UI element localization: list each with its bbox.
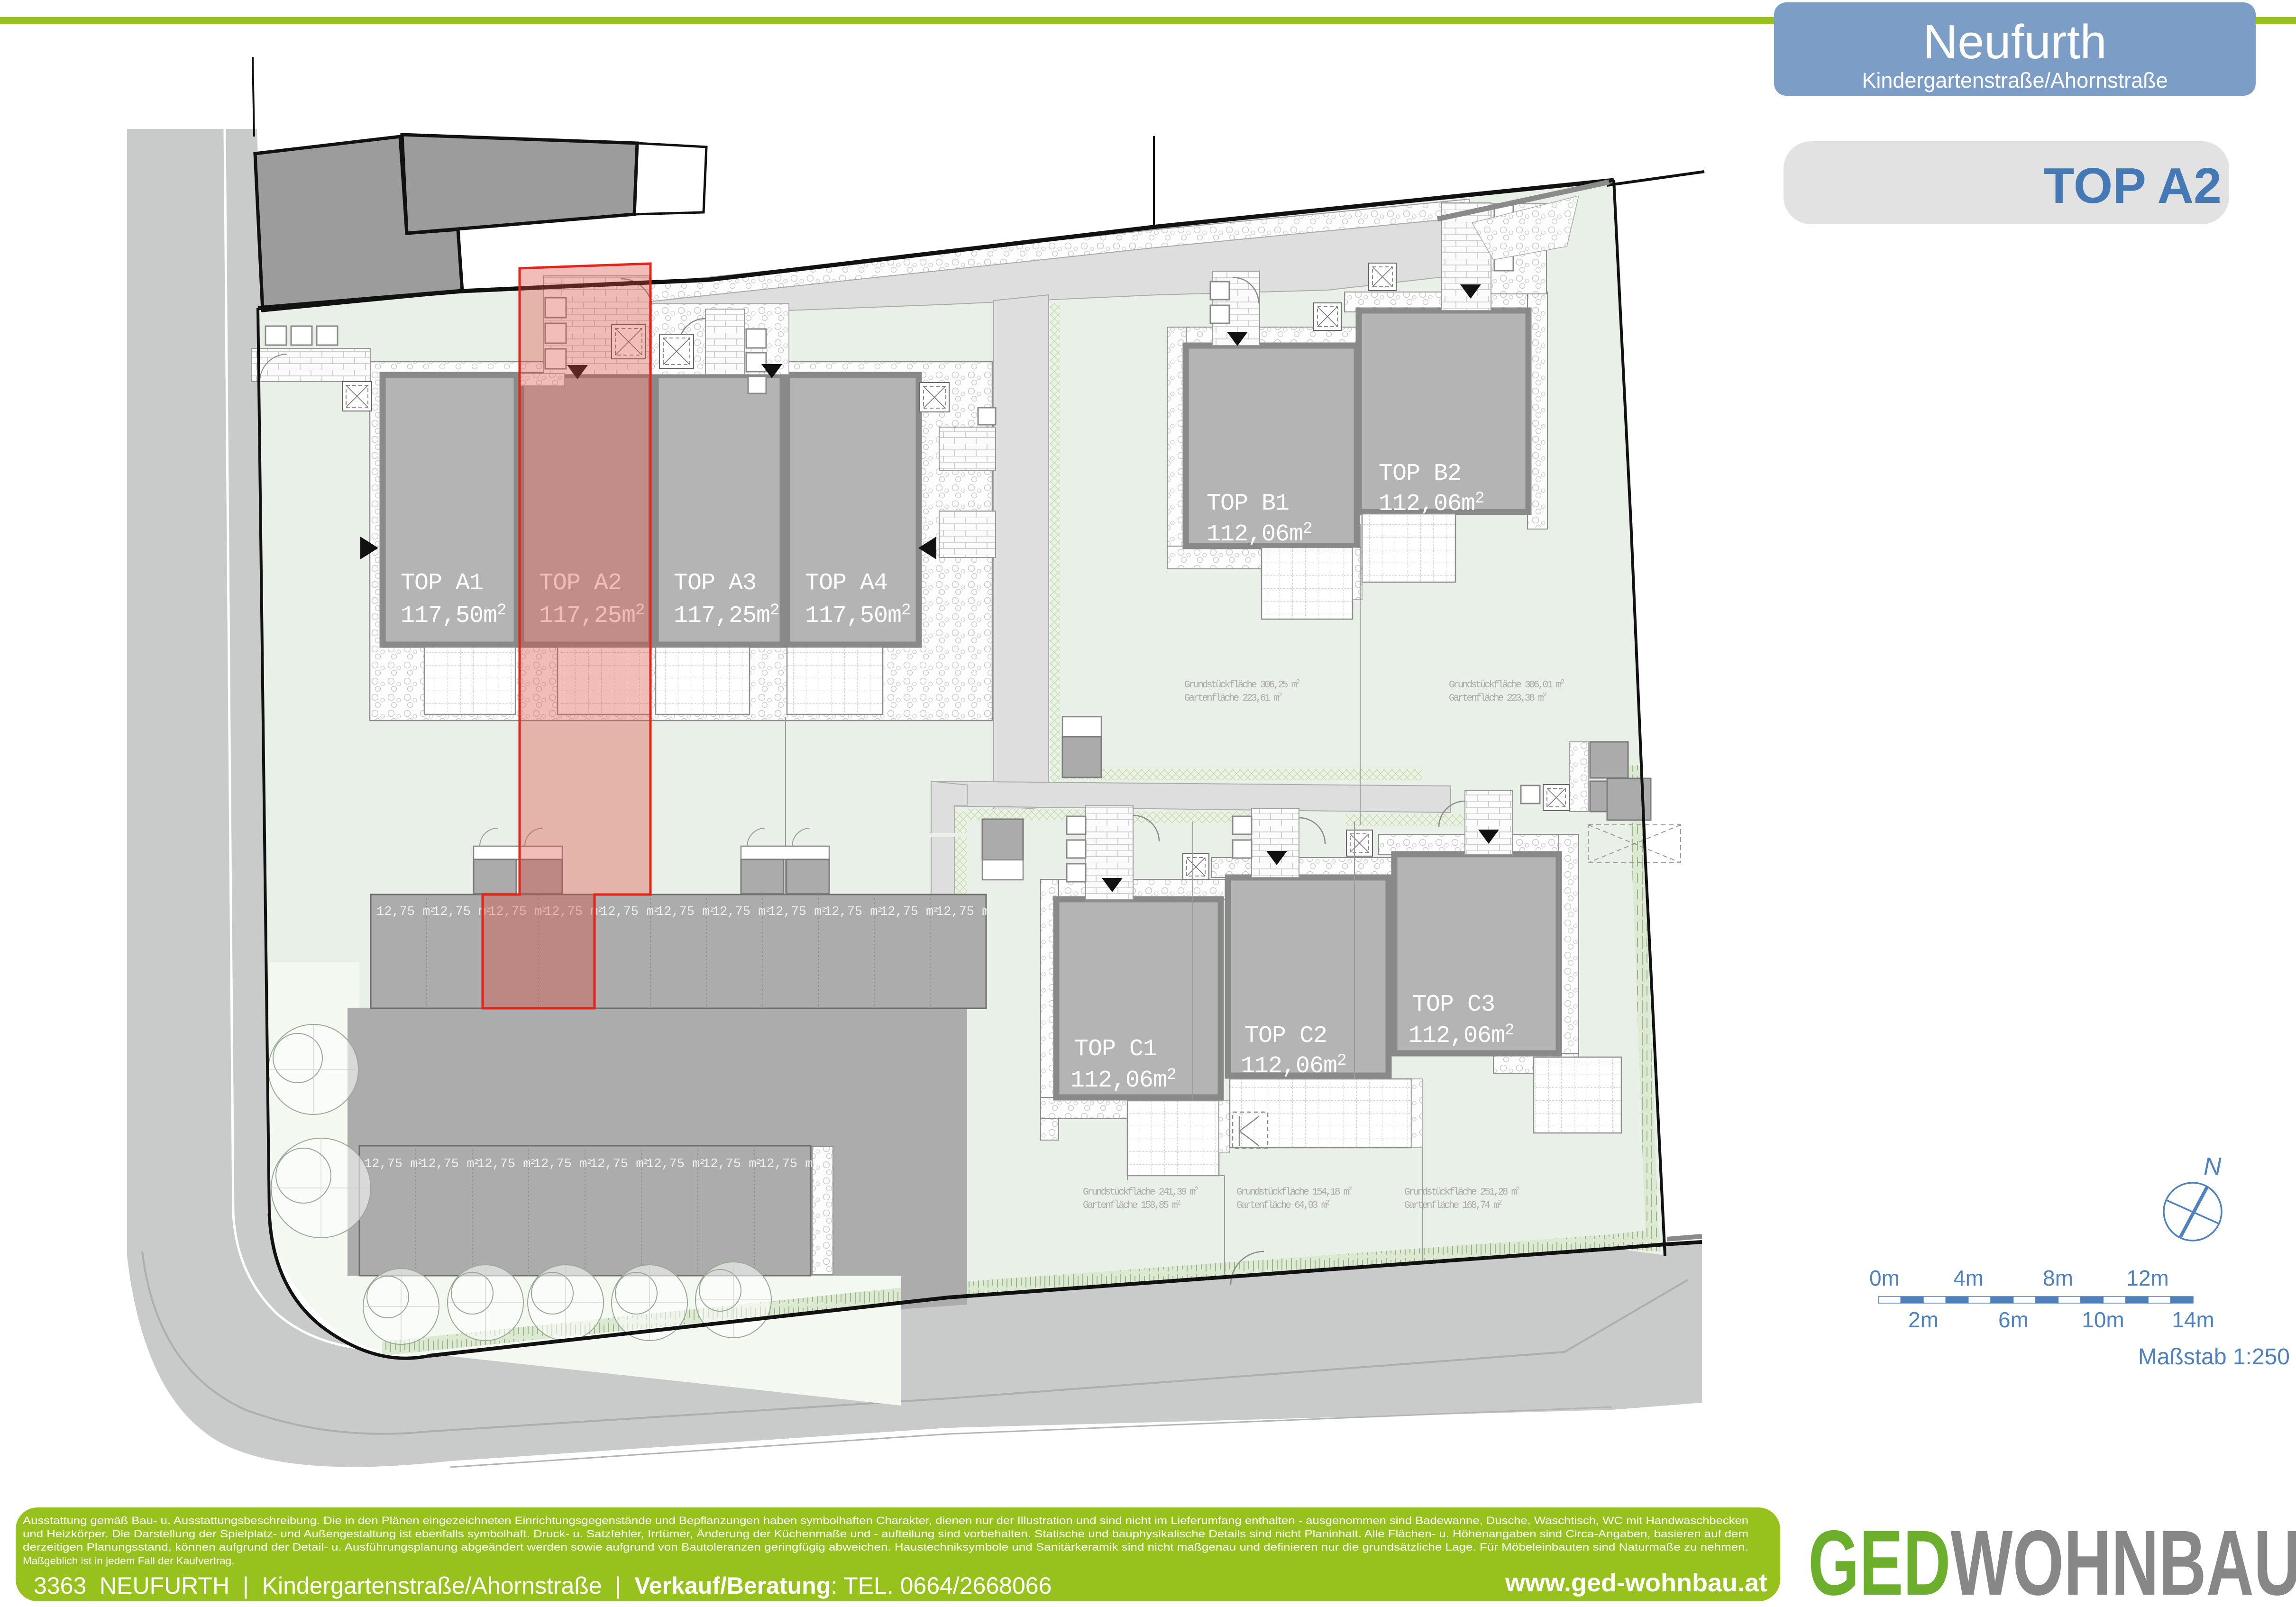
svg-text:Gartenfläche 223,38 m2: Gartenfläche 223,38 m2 xyxy=(1449,692,1546,704)
svg-text:Gartenfläche 223,61 m2: Gartenfläche 223,61 m2 xyxy=(1184,692,1281,704)
svg-text:Grundstückfläche 306,25 m2: Grundstückfläche 306,25 m2 xyxy=(1184,678,1299,691)
svg-text:12,75 m2: 12,75 m2 xyxy=(880,905,938,919)
svg-text:0m: 0m xyxy=(1869,1266,1900,1290)
svg-text:12,75 m2: 12,75 m2 xyxy=(421,1157,478,1171)
svg-text:TOP B2: TOP B2 xyxy=(1379,460,1461,487)
svg-text:TOP A3: TOP A3 xyxy=(674,570,756,597)
svg-text:derzeitigen Planungsstand, kön: derzeitigen Planungsstand, können aufgru… xyxy=(23,1541,1748,1553)
svg-text:12,75 m2: 12,75 m2 xyxy=(600,905,658,919)
svg-text:12,75 m2: 12,75 m2 xyxy=(590,1157,648,1171)
svg-text:www.ged-wohnbau.at: www.ged-wohnbau.at xyxy=(1505,1569,1767,1597)
svg-text:12,75 m2: 12,75 m2 xyxy=(646,1157,704,1171)
svg-text:112,06m2: 112,06m2 xyxy=(1409,1022,1514,1050)
svg-text:TOP A4: TOP A4 xyxy=(805,570,887,597)
svg-text:112,06m2: 112,06m2 xyxy=(1241,1052,1346,1080)
svg-text:12,75 m2: 12,75 m2 xyxy=(703,1157,760,1171)
svg-text:117,25m2: 117,25m2 xyxy=(674,602,779,630)
svg-text:GEDWOHNBAU: GEDWOHNBAU xyxy=(1808,1511,2296,1607)
svg-text:TOP A2: TOP A2 xyxy=(2044,158,2222,214)
svg-text:TOP A1: TOP A1 xyxy=(401,570,483,597)
svg-text:TOP C1: TOP C1 xyxy=(1074,1036,1157,1063)
svg-text:2m: 2m xyxy=(1908,1307,1939,1332)
svg-text:12,75 m2: 12,75 m2 xyxy=(364,1157,422,1171)
svg-text:Neufurth: Neufurth xyxy=(1923,16,2106,69)
svg-text:12,75 m2: 12,75 m2 xyxy=(533,1157,591,1171)
svg-text:12m: 12m xyxy=(2126,1266,2168,1290)
svg-text:12,75 m2: 12,75 m2 xyxy=(477,1157,535,1171)
svg-text:8m: 8m xyxy=(2043,1266,2073,1290)
svg-text:Grundstückfläche 241,39 m2: Grundstückfläche 241,39 m2 xyxy=(1083,1186,1198,1198)
svg-text:Grundstückfläche 154,18 m2: Grundstückfläche 154,18 m2 xyxy=(1236,1186,1352,1198)
svg-text:12,75 m2: 12,75 m2 xyxy=(936,905,994,919)
svg-text:112,06m2: 112,06m2 xyxy=(1207,520,1312,548)
svg-text:12,75 m2: 12,75 m2 xyxy=(376,905,434,919)
svg-text:10m: 10m xyxy=(2082,1307,2124,1332)
svg-text:12,75 m2: 12,75 m2 xyxy=(824,905,882,919)
svg-text:TOP C3: TOP C3 xyxy=(1412,991,1495,1018)
svg-text:14m: 14m xyxy=(2172,1307,2214,1332)
svg-text:12,75 m2: 12,75 m2 xyxy=(759,1157,817,1171)
svg-text:Maßgeblich ist in jedem Fall d: Maßgeblich ist in jedem Fall der Kaufver… xyxy=(23,1555,234,1567)
svg-text:Grundstückfläche 251,28 m2: Grundstückfläche 251,28 m2 xyxy=(1404,1186,1519,1198)
svg-text:Gartenfläche 64,93 m2: Gartenfläche 64,93 m2 xyxy=(1236,1199,1329,1211)
svg-text:12,75 m2: 12,75 m2 xyxy=(712,905,770,919)
svg-text:6m: 6m xyxy=(1998,1307,2029,1332)
svg-text:117,50m2: 117,50m2 xyxy=(401,602,506,630)
svg-text:112,06m2: 112,06m2 xyxy=(1070,1066,1176,1094)
svg-text:N: N xyxy=(2204,1153,2222,1180)
svg-text:Ausstattung gemäß Bau- u. Auss: Ausstattung gemäß Bau- u. Ausstattungsbe… xyxy=(23,1515,1748,1526)
svg-text:Kindergartenstraße/Ahornstraße: Kindergartenstraße/Ahornstraße xyxy=(1862,68,2168,92)
svg-text:TOP B1: TOP B1 xyxy=(1207,490,1289,517)
svg-text:4m: 4m xyxy=(1953,1266,1984,1290)
svg-text:Gartenfläche 158,85 m2: Gartenfläche 158,85 m2 xyxy=(1083,1199,1180,1211)
svg-text:12,75 m2: 12,75 m2 xyxy=(656,905,714,919)
svg-text:Grundstückfläche 306,01 m2: Grundstückfläche 306,01 m2 xyxy=(1449,678,1564,691)
svg-text:3363 NEUFURTH | Kindergarte: 3363 NEUFURTH | Kindergartenstraße/Ahorn… xyxy=(34,1572,1052,1599)
svg-text:TOP C2: TOP C2 xyxy=(1244,1023,1327,1050)
svg-text:und Heizkörper. Die Darstellun: und Heizkörper. Die Darstellung der Spie… xyxy=(23,1528,1748,1540)
svg-text:Gartenfläche 168,74 m2: Gartenfläche 168,74 m2 xyxy=(1404,1199,1501,1211)
svg-text:Maßstab 1:250: Maßstab 1:250 xyxy=(2138,1344,2290,1370)
svg-text:117,50m2: 117,50m2 xyxy=(805,602,910,630)
svg-text:12,75 m2: 12,75 m2 xyxy=(768,905,826,919)
